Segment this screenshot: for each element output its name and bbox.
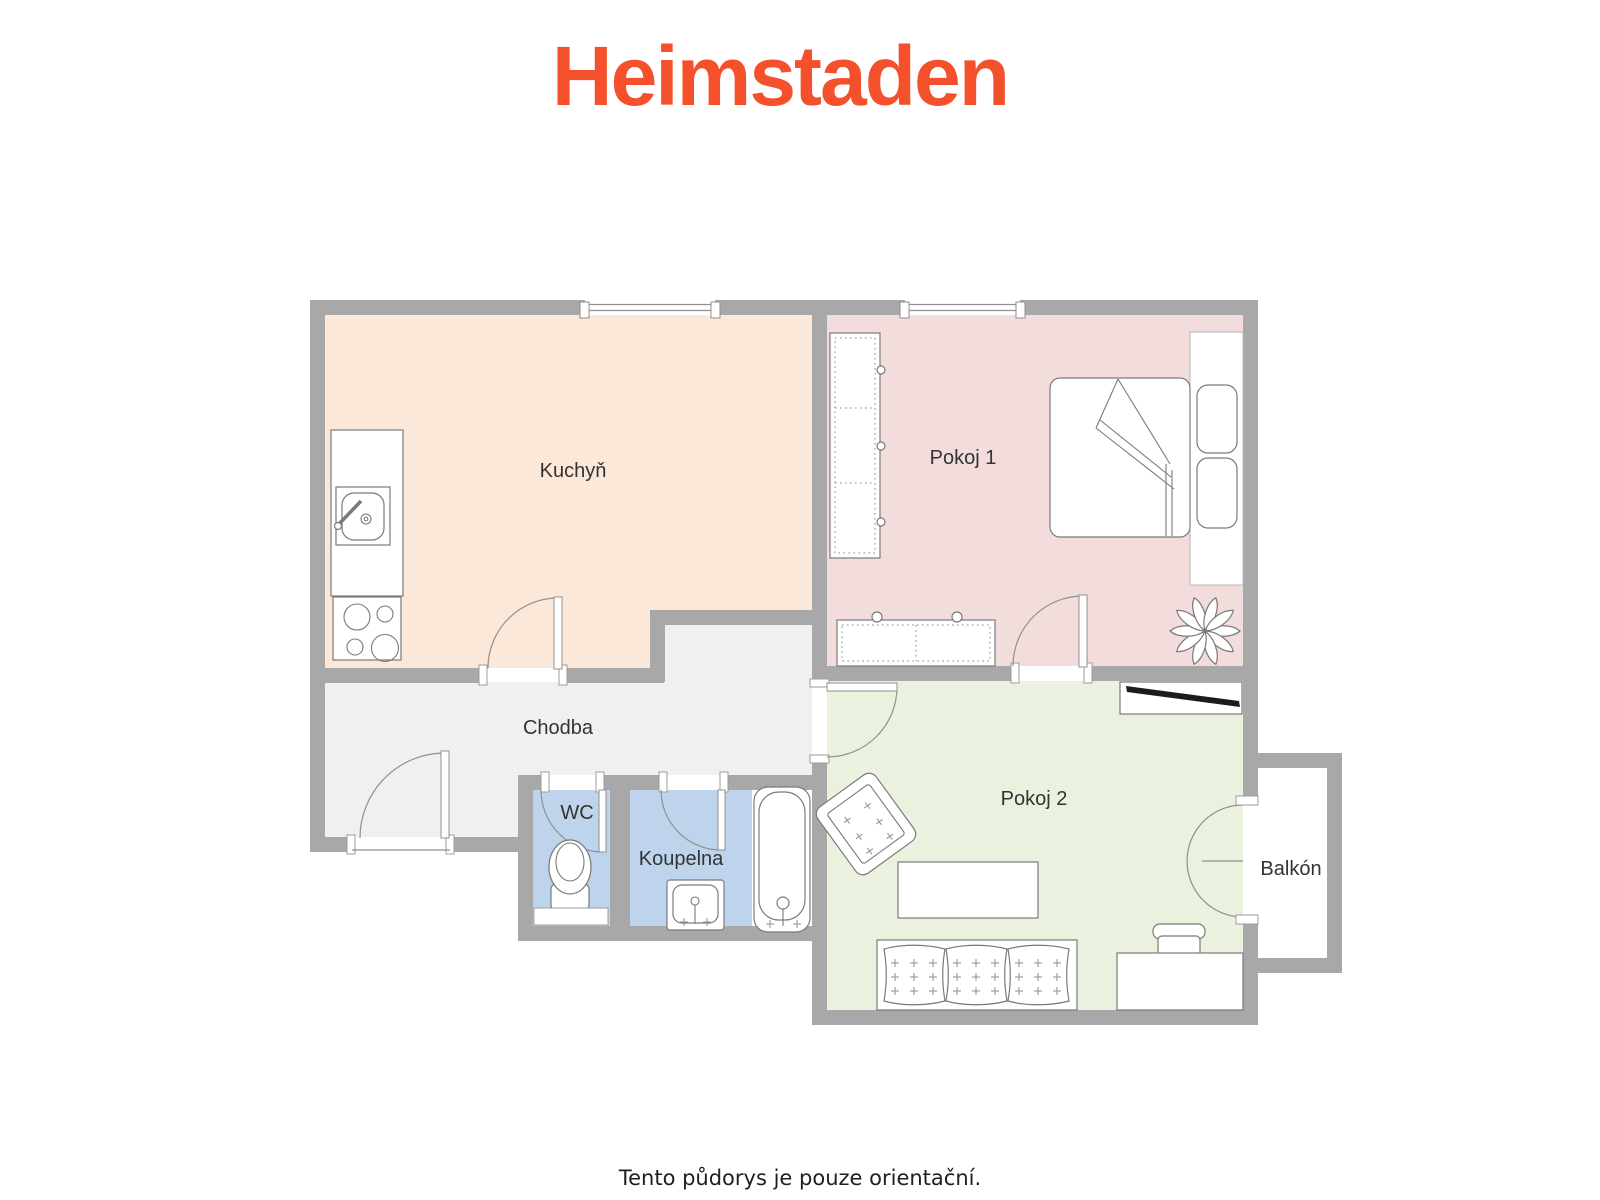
tv-sideboard-icon (1120, 682, 1242, 714)
sofa-icon (877, 940, 1077, 1010)
floorplan-drawing: Kuchyň Pokoj 1 Chodba WC Koupelna Pokoj … (0, 0, 1600, 1200)
dresser-icon (837, 612, 995, 666)
room-label-kuchyn: Kuchyň (540, 460, 607, 482)
room-label-koupelna: Koupelna (639, 848, 724, 870)
room-label-pokoj2: Pokoj 2 (1001, 788, 1068, 810)
wc-shelf (534, 908, 608, 925)
washbasin-icon (667, 880, 724, 930)
room-label-chodba: Chodba (523, 717, 594, 739)
coffee-table-icon (898, 862, 1038, 918)
stove-icon (333, 597, 401, 662)
pillow-icon (1197, 458, 1237, 528)
pillow-icon (1197, 385, 1237, 453)
toilet-icon (549, 840, 591, 910)
sink-icon (335, 487, 391, 545)
room-label-balkon: Balkón (1260, 858, 1321, 880)
disclaimer-text: Tento půdorys je pouze orientační. (0, 1166, 1600, 1190)
wardrobe-icon (830, 333, 885, 558)
room-label-pokoj1: Pokoj 1 (930, 447, 997, 469)
bathtub-icon (754, 787, 810, 932)
room-label-wc: WC (560, 802, 593, 824)
